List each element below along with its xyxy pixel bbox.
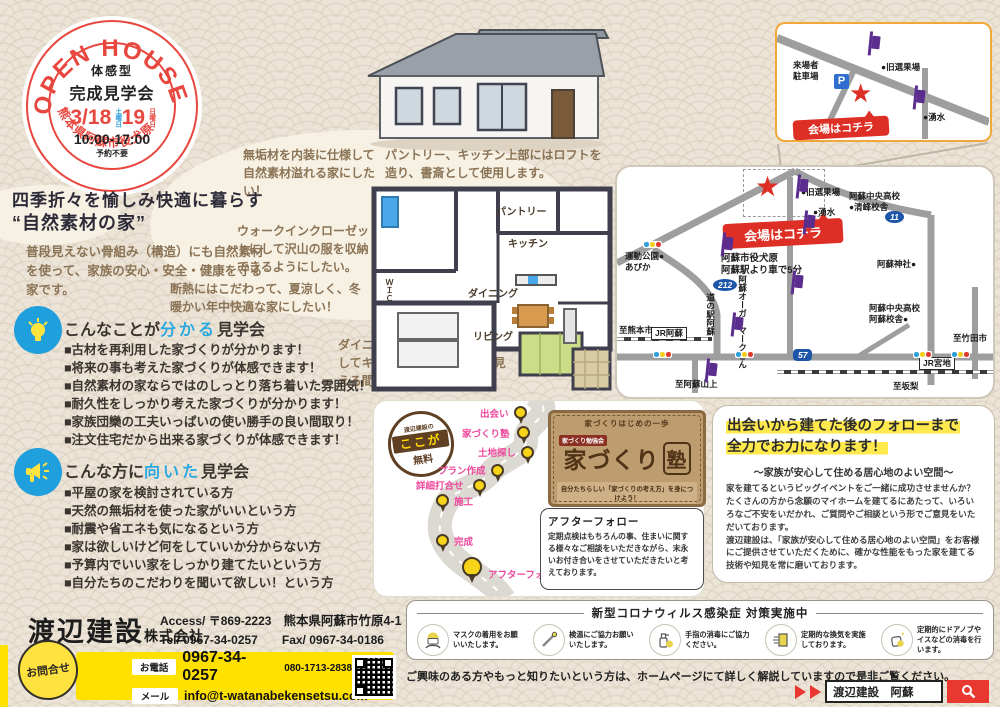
room-label-living: リビング <box>473 328 513 343</box>
wipe-disinfect-icon <box>881 624 913 656</box>
search-input[interactable] <box>825 680 943 703</box>
afterfollow-callout: アフターフォロー 定期点検はもちろんの事、住まいに関する様々なご相談をいただきな… <box>540 508 704 590</box>
headline-line2: “自然素材の家” <box>12 209 146 235</box>
covid-item-list: マスクの着用をお願いいたします。 検温にご協力お願いいたします。 手指の消毒にご… <box>417 624 983 656</box>
juku-tag: 家づくり勉強会 <box>559 435 607 446</box>
fit-item: ■家は欲しいけど何をしていいか分からない方 <box>64 538 334 556</box>
covid-text: 検温にご協力お願いいたします。 <box>569 630 635 650</box>
learn-section-title: こんなことが分かる見学会 <box>64 316 265 340</box>
event-name: 完成見学会 <box>69 80 154 104</box>
iezukuri-juku-card: 家づくりはじめの一歩 家づくり勉強会 家づくり 塾 自分たちらしい「家づくりの考… <box>548 410 706 507</box>
flag-icon <box>734 317 743 331</box>
parking-icon: P <box>834 74 849 89</box>
traffic-signal-icon <box>643 241 662 248</box>
fit-item: ■平屋の家を検討されている方 <box>64 484 334 502</box>
covid-text: 定期的にドアノブやイスなどの消毒を行います。 <box>917 625 983 655</box>
phone-main-number[interactable]: 0967-34-0257 <box>182 649 278 685</box>
covid-measures-box: 新型コロナウィルス感染症 対策実施中 マスクの着用をお願いいたします。 検温にご… <box>406 600 994 660</box>
contact-strip: お電話 0967-34-0257 080-1713-2838（渡辺） メール i… <box>76 652 394 700</box>
mail-label: メール <box>132 688 178 704</box>
step-plan: プラン作成 <box>438 463 486 477</box>
event-type: 体感型 <box>91 62 133 79</box>
phone-label: お電話 <box>132 659 176 675</box>
arrow-right-icon <box>795 685 806 699</box>
learn-item: ■家族団欒の工夫いっぱいの使い勝手の良い間取り！ <box>64 413 371 431</box>
pin-icon <box>491 464 504 477</box>
learn-title-pre: こんなことが <box>64 322 160 339</box>
covid-item-mask: マスクの着用をお願いいたします。 <box>417 624 519 656</box>
parking-label: 来場者駐車場 <box>793 60 819 81</box>
flag-icon <box>871 36 880 50</box>
inset-map: 来場者駐車場 P ●旧選果場 ●湧水 ★ 会場はコチラ <box>775 22 992 142</box>
room-label-kitchen: キッチン <box>508 235 548 250</box>
juku-caption: 自分たちらしい「家づくりの考え方」を身につけよう！ <box>557 482 697 504</box>
fit-title-post: 見学会 <box>201 464 249 481</box>
juku-logo-main: 家づくり <box>564 441 660 475</box>
covid-title: 新型コロナウィルス感染症 対策実施中 <box>592 605 809 621</box>
learn-item-list: ■古材を再利用した家づくりが分かります！ ■将来の事も考えた家づくりが体感できま… <box>64 341 371 449</box>
main-map: ★ 会場はコチラ 阿蘇市役犬原阿蘇駅より車で5分 ●旧選果場 ●湧水 阿蘇中央高… <box>615 165 995 399</box>
spray-bottle-icon <box>649 624 681 656</box>
qr-code <box>352 655 396 699</box>
learn-item: ■耐久性をしっかり考えた家づくりが分かります！ <box>64 395 371 413</box>
fit-title-accent: 向いた <box>144 464 201 481</box>
chuo-high-1b: ●清峰校舎 <box>849 202 888 212</box>
fit-item: ■天然の無垢材を使った家がいいという方 <box>64 502 334 520</box>
promise-subtitle: ～家族が安心して住める居心地のよい空間～ <box>726 464 981 479</box>
event-dates: 3/18 土曜日 19 日曜日 <box>70 106 153 130</box>
window-ventilation-icon <box>765 624 797 656</box>
promise-title-line1: 出会いから建てた後のフォローまで <box>726 418 960 434</box>
megaphone-icon <box>14 448 62 496</box>
flyer-page: OPEN HOUSE 熊本県阿蘇市役犬原 体感型 完成見学会 3/18 土曜日 … <box>0 0 1000 707</box>
event-date-2: 19 <box>122 106 145 130</box>
organic-b: マークさん <box>738 326 748 369</box>
covid-item-sanitize: 手指の消毒にご協力ください。 <box>649 624 751 656</box>
chuo-high-2b: 阿蘇校舎● <box>869 314 908 324</box>
room-label-wic: ＷＩＣ <box>384 278 395 302</box>
to-aso-sanjo-label: 至阿蘇山上 <box>675 379 718 390</box>
event-date-1: 3/18 <box>70 106 111 130</box>
lightbulb-icon <box>14 306 62 354</box>
spring-label: ●湧水 <box>923 112 945 123</box>
learn-title-accent: 分かる <box>160 322 217 339</box>
flag-icon <box>794 275 803 289</box>
pin-icon <box>514 406 527 419</box>
old-fruit-plant-label: ●旧選果場 <box>881 62 920 73</box>
fax-number: 0967-34-0186 <box>309 633 384 647</box>
flag-icon <box>799 179 808 193</box>
open-house-badge: OPEN HOUSE 熊本県阿蘇市役犬原 体感型 完成見学会 3/18 土曜日 … <box>26 20 198 192</box>
route-57-badge: 57 <box>793 349 812 361</box>
step-sekou: 施工 <box>454 494 473 508</box>
traffic-signal-icon <box>951 351 970 358</box>
learn-title-post: 見学会 <box>217 322 265 339</box>
to-takeda-label: 至竹田市 <box>953 333 987 344</box>
covid-item-temp: 検温にご協力お願いいたします。 <box>533 624 635 656</box>
phone-row: お電話 0967-34-0257 080-1713-2838（渡辺） <box>132 649 388 685</box>
flag-icon <box>708 363 717 377</box>
covid-text: 手指の消毒にご協力ください。 <box>685 630 751 650</box>
chuo-high-seiho-label: 阿蘇中央高校●清峰校舎 <box>849 191 900 212</box>
covid-text: マスクの着用をお願いいたします。 <box>453 630 519 650</box>
route-11-badge: 11 <box>885 211 904 223</box>
sports-park: 運動公園● <box>625 251 664 261</box>
covid-title-row: 新型コロナウィルス感染症 対策実施中 <box>417 605 983 621</box>
thermometer-icon <box>533 624 565 656</box>
badge-center: 体感型 完成見学会 3/18 土曜日 19 日曜日 10:00-17:00 予約… <box>28 22 196 190</box>
venue-address-line1: 阿蘇市役犬原 <box>721 253 778 264</box>
traffic-signal-icon <box>735 351 754 358</box>
access-label: Access/ <box>160 614 205 628</box>
tel-number: 0967-34-0257 <box>183 633 258 647</box>
company-address: 熊本県阿蘇市竹原4-1 <box>283 614 401 628</box>
arrow-right-icon <box>810 685 821 699</box>
mask-icon <box>417 624 449 656</box>
pin-icon <box>436 534 449 547</box>
search-button[interactable] <box>947 680 989 703</box>
afterfollow-body: 定期点検はもちろんの事、住まいに関する様々なご相談をいただきながら、末永いお付き… <box>548 531 696 579</box>
wish-note-dannetsu: 断熱にはこだわって、夏涼しく、冬暖かい年中快適な家にしたい！ <box>170 280 362 316</box>
postal-code: 〒869-2223 <box>209 614 272 628</box>
sports-park-label: 運動公園●あぴか <box>625 251 664 272</box>
flag-icon <box>806 215 815 229</box>
parking-line2: 駐車場 <box>793 71 819 81</box>
step-kansei: 完成 <box>454 534 473 548</box>
left-accent-bar <box>0 645 8 707</box>
covid-text: 定期的な換気を実施しております。 <box>801 630 867 650</box>
no-reservation-note: 予約不要 <box>96 148 128 159</box>
company-access-block: Access/ 〒869-2223 熊本県阿蘇市竹原4-1 Tel/ 0967-… <box>160 612 402 650</box>
step-juku: 家づくり塾 <box>462 426 510 440</box>
parking-line1: 来場者 <box>793 60 819 70</box>
to-kumamoto-label: 至熊本市 <box>619 325 653 336</box>
magnifier-icon <box>961 684 976 699</box>
jr-miyaji-station: JR宮地 <box>919 357 955 370</box>
step-deai: 出会い <box>480 406 509 420</box>
room-label-dining: ダイニング <box>468 285 518 300</box>
pin-icon <box>473 479 486 492</box>
learn-item: ■注文住宅だから出来る家づくりが体感できます！ <box>64 431 371 449</box>
wish-note-loft: パントリー、キッチン上部にはロフトを造り、書斎として使用します。 <box>385 146 610 182</box>
chuo-high-aso-label: 阿蘇中央高校阿蘇校舎● <box>869 303 920 324</box>
venue-star-icon: ★ <box>755 173 780 201</box>
learn-item: ■将来の事も考えた家づくりが体感できます！ <box>64 359 371 377</box>
wish-note-mukuzai: 無垢材を内装に仕様して自然素材溢れる家にしたい！ <box>243 146 381 200</box>
fit-item: ■耐震や省エネも気になるという方 <box>64 520 334 538</box>
house-illustration <box>338 14 610 154</box>
venue-star-icon: ★ <box>849 80 872 106</box>
free-badge-bottom: 無料 <box>412 449 434 467</box>
promise-body-2: 渡辺建設は、「家族が安心して住める居心地のよい空間」をお客様にご提供させていただ… <box>726 534 981 573</box>
aso-shrine-label: 阿蘇神社● <box>877 259 916 270</box>
to-sakanashi-label: 至坂梨 <box>893 381 919 392</box>
juku-logo: 家づくり 塾 <box>557 441 697 475</box>
tel-label: Tel/ <box>160 633 180 647</box>
juku-logo-mark: 塾 <box>663 442 691 475</box>
jr-aso-station: JR阿蘇 <box>651 327 687 340</box>
fax-label: Fax/ <box>282 633 306 647</box>
promise-box: 出会いから建てた後のフォローまで 全力でお力になります！ ～家族が安心して住める… <box>712 405 995 583</box>
spring-label: ●湧水 <box>813 207 835 218</box>
step-uchiawase: 詳細打合せ <box>416 478 464 492</box>
fit-item-list: ■平屋の家を検討されている方 ■天然の無垢材を使った家がいいという方 ■耐震や省… <box>64 484 334 592</box>
fit-section-title: こんな方に向いた見学会 <box>64 458 249 482</box>
event-time: 10:00-17:00 <box>74 131 150 147</box>
fit-item: ■自分たちのこだわりを聞いて欲しい！という方 <box>64 574 334 592</box>
step-tochisagashi: 土地探し <box>478 445 516 459</box>
afterfollow-title: アフターフォロー <box>548 514 696 529</box>
fit-title-pre: こんな方に <box>64 464 144 481</box>
pin-icon <box>436 494 449 507</box>
juku-tagline: 家づくりはじめの一歩 <box>557 418 697 429</box>
traffic-signal-icon <box>913 351 932 358</box>
headline-line1: 四季折々を愉しみ快適に暮らす <box>12 186 264 211</box>
learn-item: ■自然素材の家ならではのしっとり落ち着いた雰囲気！ <box>64 377 371 395</box>
promise-body-1: 家を建てるというビッグイベントをご一緒に成功させませんか？たくさんの方から念願の… <box>726 482 981 534</box>
chuo-high-2a: 阿蘇中央高校 <box>869 303 920 313</box>
traffic-signal-icon <box>653 351 672 358</box>
event-day-1: 土曜日 <box>113 108 120 128</box>
event-day-2: 日曜日 <box>147 108 154 128</box>
wish-note-wic: ウォークインクローゼットにして沢山の服を収納できるようにしたい。 <box>237 222 379 276</box>
promise-title: 出会いから建てた後のフォローまで 全力でお力になります！ <box>726 416 981 458</box>
michinoeki-label: 道の駅阿蘇 <box>705 293 716 336</box>
chuo-high-1a: 阿蘇中央高校 <box>849 191 900 201</box>
venue-address: 阿蘇市役犬原阿蘇駅より車で5分 <box>721 253 802 277</box>
pin-icon <box>521 446 534 459</box>
email-address[interactable]: info@t-watanabekensetsu.com <box>184 689 368 703</box>
covid-item-ventilation: 定期的な換気を実施しております。 <box>765 624 867 656</box>
pin-icon <box>462 557 482 577</box>
venue-address-line2: 阿蘇駅より車で5分 <box>721 265 802 276</box>
search-row <box>795 680 989 703</box>
learn-item: ■古材を再利用した家づくりが分かります！ <box>64 341 371 359</box>
pin-icon <box>517 426 530 439</box>
mail-row: メール info@t-watanabekensetsu.com <box>132 688 388 704</box>
apika: あぴか <box>625 262 651 272</box>
flag-icon <box>724 237 733 251</box>
contact-badge-label: お問合せ <box>25 659 71 681</box>
flag-icon <box>916 90 925 104</box>
promise-title-line2: 全力でお力になります！ <box>726 439 888 455</box>
room-label-pantry: パントリー <box>496 203 547 218</box>
fit-item: ■予算内でいい家をしっかり建てたいという方 <box>64 556 334 574</box>
covid-item-disinfect: 定期的にドアノブやイスなどの消毒を行います。 <box>881 624 983 656</box>
